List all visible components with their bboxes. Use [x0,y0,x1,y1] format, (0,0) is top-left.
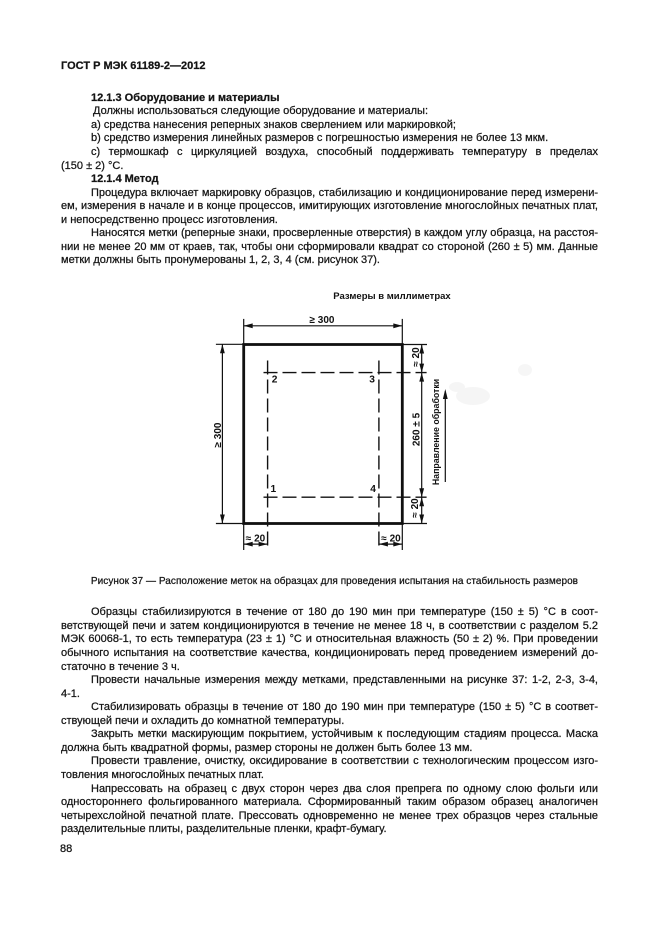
svg-text:Направление обработки: Направление обработки [431,379,441,485]
svg-text:≈ 20: ≈ 20 [246,533,266,544]
svg-text:≈ 20: ≈ 20 [411,347,422,367]
svg-text:3: 3 [369,375,375,386]
svg-text:4: 4 [370,484,376,495]
svg-text:2: 2 [272,374,278,385]
svg-text:≥ 300: ≥ 300 [213,422,224,447]
svg-text:≥ 300: ≥ 300 [310,315,335,326]
svg-text:1: 1 [271,484,277,495]
svg-text:≈ 20: ≈ 20 [381,533,401,544]
svg-text:≈ 20: ≈ 20 [410,498,421,518]
svg-text:Размеры в миллиметрах: Размеры в миллиметрах [333,291,451,302]
svg-text:260 ± 5: 260 ± 5 [412,412,423,446]
